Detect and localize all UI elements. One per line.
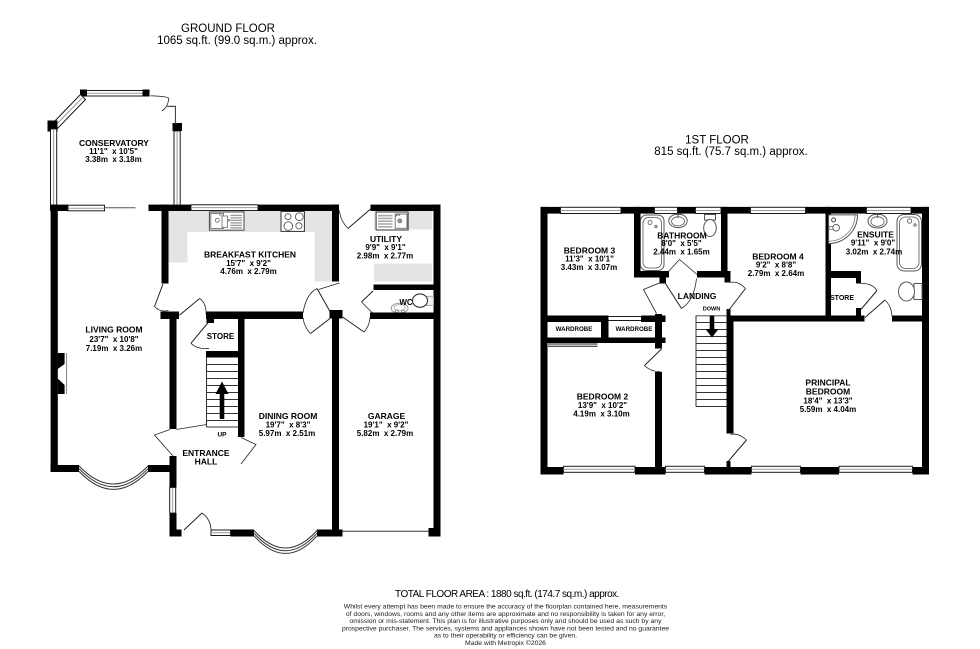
svg-text:3.43m x 3.07m: 3.43m x 3.07m: [561, 263, 617, 272]
svg-text:GARAGE: GARAGE: [368, 411, 406, 421]
svg-text:1ST FLOOR: 1ST FLOOR: [685, 135, 749, 147]
svg-text:LIVING ROOM: LIVING ROOM: [85, 325, 142, 335]
svg-text:BEDROOM 2: BEDROOM 2: [577, 391, 629, 401]
svg-text:2.79m x 2.64m: 2.79m x 2.64m: [748, 269, 804, 278]
svg-text:7.19m x 3.26m: 7.19m x 3.26m: [86, 344, 142, 353]
svg-text:5.97m x 2.51m: 5.97m x 2.51m: [259, 429, 315, 438]
svg-text:GROUND FLOOR: GROUND FLOOR: [181, 23, 275, 35]
svg-text:LANDING: LANDING: [678, 291, 717, 301]
svg-text:STORE: STORE: [830, 295, 854, 302]
svg-text:BEDROOM: BEDROOM: [806, 386, 850, 396]
svg-text:omission or mis-statement. Thi: omission or mis-statement. This plan is …: [350, 618, 663, 625]
svg-text:WARDROBE: WARDROBE: [556, 326, 593, 333]
svg-text:23'7" x 10'8": 23'7" x 10'8": [89, 335, 138, 344]
svg-text:4.19m x 3.10m: 4.19m x 3.10m: [573, 409, 629, 418]
svg-text:Made with Metropix ©2026: Made with Metropix ©2026: [465, 639, 546, 647]
svg-text:5.59m x 4.04m: 5.59m x 4.04m: [800, 405, 856, 414]
svg-text:HALL: HALL: [195, 456, 218, 466]
svg-text:5.82m x 2.79m: 5.82m x 2.79m: [357, 429, 413, 438]
svg-text:STORE: STORE: [207, 332, 235, 341]
svg-text:Whilst every attempt has been: Whilst every attempt has been made to en…: [344, 604, 668, 611]
svg-text:WC: WC: [399, 298, 413, 307]
svg-text:815 sq.ft. (75.7 sq.m.) approx: 815 sq.ft. (75.7 sq.m.) approx.: [654, 146, 807, 158]
svg-text:3.02m x 2.74m: 3.02m x 2.74m: [846, 248, 902, 257]
svg-text:BREAKFAST KITCHEN: BREAKFAST KITCHEN: [204, 249, 296, 259]
svg-text:TOTAL FLOOR AREA : 1880 sq.ft.: TOTAL FLOOR AREA : 1880 sq.ft. (174.7 sq…: [395, 589, 619, 600]
svg-text:2.44m x 1.65m: 2.44m x 1.65m: [653, 247, 709, 256]
svg-text:9'11" x 9'0": 9'11" x 9'0": [851, 239, 896, 248]
svg-text:as to their operability or eff: as to their operability or efficiency ca…: [434, 633, 577, 640]
svg-text:DINING ROOM: DINING ROOM: [259, 411, 318, 421]
svg-text:1065 sq.ft. (99.0 sq.m.) appro: 1065 sq.ft. (99.0 sq.m.) approx.: [157, 35, 317, 47]
svg-text:DOWN: DOWN: [703, 306, 720, 312]
svg-text:prospective purchaser. The ser: prospective purchaser. The services, sys…: [342, 625, 669, 632]
svg-text:of doors, windows, rooms and a: of doors, windows, rooms and any other i…: [346, 611, 665, 618]
svg-text:3.38m x 3.18m: 3.38m x 3.18m: [85, 155, 141, 164]
svg-text:WARDROBE: WARDROBE: [616, 326, 653, 333]
svg-text:2.98m x 2.77m: 2.98m x 2.77m: [357, 251, 413, 260]
svg-text:UP: UP: [217, 432, 227, 439]
svg-text:4.76m x 2.79m: 4.76m x 2.79m: [220, 267, 276, 276]
